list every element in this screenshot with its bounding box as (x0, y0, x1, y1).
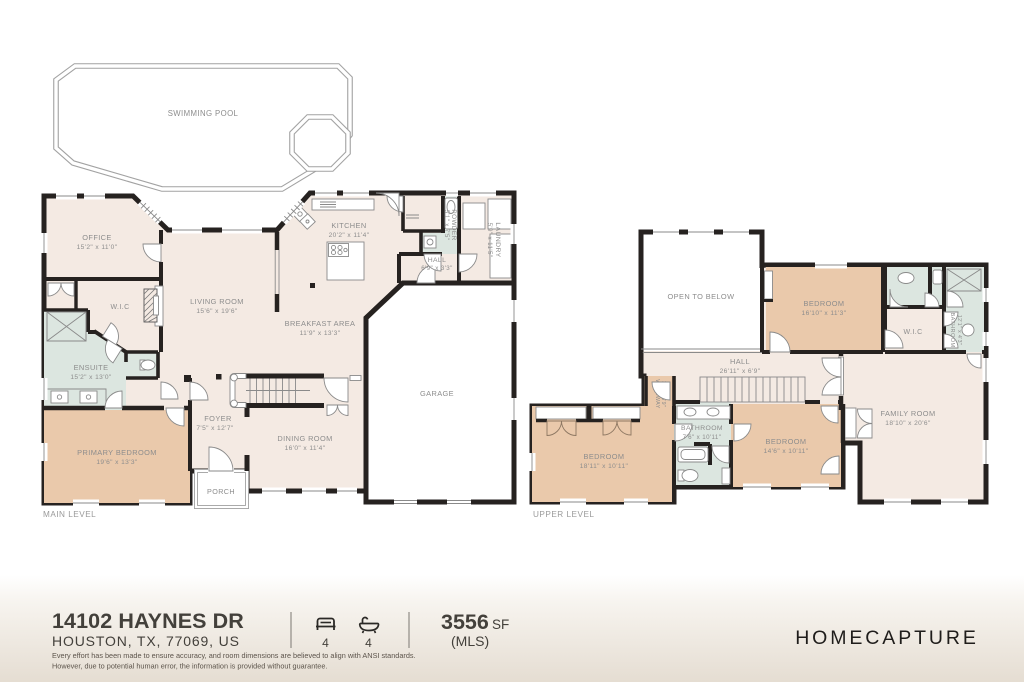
svg-text:26'11" x 6'9": 26'11" x 6'9" (720, 368, 761, 375)
svg-text:19'6" x 13'3": 19'6" x 13'3" (96, 459, 138, 466)
svg-text:14102 HAYNES DR: 14102 HAYNES DR (52, 609, 244, 633)
svg-text:SF: SF (492, 617, 509, 632)
svg-text:ENSUITE: ENSUITE (74, 363, 109, 372)
svg-text:FOYER: FOYER (204, 414, 231, 423)
svg-text:5'9" x 11'5": 5'9" x 11'5" (486, 223, 493, 258)
svg-text:11'9" x 13'3": 11'9" x 13'3" (300, 330, 341, 337)
svg-text:W.I.C: W.I.C (110, 304, 129, 311)
svg-text:HOUSTON, TX, 77069, US: HOUSTON, TX, 77069, US (52, 633, 240, 649)
svg-text:14'6" x 10'11": 14'6" x 10'11" (764, 448, 809, 455)
svg-text:7'6" x 10'11": 7'6" x 10'11" (683, 434, 722, 441)
svg-text:18'11" x 10'11": 18'11" x 10'11" (580, 463, 629, 470)
svg-text:GARAGE: GARAGE (420, 389, 454, 398)
svg-text:20'2" x 11'4": 20'2" x 11'4" (329, 232, 370, 239)
svg-text:16'10" x 11'3": 16'10" x 11'3" (802, 310, 847, 317)
svg-text:Every effort has been made to: Every effort has been made to ensure acc… (52, 651, 416, 660)
svg-text:15'2" x 13'0": 15'2" x 13'0" (70, 374, 112, 381)
svg-text:OPEN TO BELOW: OPEN TO BELOW (668, 292, 735, 301)
svg-text:However, due to potential huma: However, due to potential human error, t… (52, 662, 327, 671)
svg-text:12'1" x 4'3": 12'1" x 4'3" (956, 315, 962, 345)
svg-text:6'9" x 3'3": 6'9" x 3'3" (421, 265, 452, 272)
svg-text:BEDROOM: BEDROOM (804, 299, 845, 308)
svg-text:PORCH: PORCH (207, 487, 235, 496)
svg-text:LAUNDRY: LAUNDRY (494, 222, 501, 257)
svg-text:FAMILY ROOM: FAMILY ROOM (880, 409, 935, 418)
svg-text:DINING ROOM: DINING ROOM (277, 434, 332, 443)
svg-text:18'10" x 20'6": 18'10" x 20'6" (885, 420, 931, 427)
svg-text:SWIMMING POOL: SWIMMING POOL (168, 109, 239, 118)
svg-text:4: 4 (322, 636, 329, 650)
svg-text:KITCHEN: KITCHEN (331, 221, 366, 230)
svg-text:BEDROOM: BEDROOM (584, 452, 625, 461)
svg-text:BATHROOM: BATHROOM (949, 312, 955, 347)
svg-text:BATHROOM: BATHROOM (681, 425, 723, 432)
svg-text:15'6" x 19'6": 15'6" x 19'6" (196, 308, 238, 315)
svg-text:PRIMARY BEDROOM: PRIMARY BEDROOM (77, 448, 157, 457)
svg-text:UPPER LEVEL: UPPER LEVEL (533, 510, 594, 519)
svg-text:HALL: HALL (730, 357, 750, 366)
svg-text:HOMECAPTURE: HOMECAPTURE (795, 627, 979, 649)
svg-text:15'2" x 11'0": 15'2" x 11'0" (77, 244, 118, 251)
svg-text:5'1" x 7'5": 5'1" x 7'5" (443, 210, 449, 241)
svg-text:3556: 3556 (441, 610, 489, 634)
svg-text:BEDROOM: BEDROOM (766, 437, 807, 446)
svg-text:(MLS): (MLS) (451, 633, 489, 649)
svg-text:MAIN LEVEL: MAIN LEVEL (43, 510, 96, 519)
svg-text:7'5" x 12'7": 7'5" x 12'7" (196, 425, 234, 432)
svg-text:W.I.C: W.I.C (903, 329, 922, 336)
svg-text:4: 4 (365, 636, 372, 650)
svg-text:HALL: HALL (428, 257, 447, 264)
svg-text:OFFICE: OFFICE (82, 233, 112, 242)
svg-text:LIVING ROOM: LIVING ROOM (190, 297, 244, 306)
svg-text:16'0" x 11'4": 16'0" x 11'4" (285, 445, 326, 452)
svg-text:BREAKFAST AREA: BREAKFAST AREA (285, 319, 356, 328)
svg-text:POWDER: POWDER (450, 209, 457, 240)
